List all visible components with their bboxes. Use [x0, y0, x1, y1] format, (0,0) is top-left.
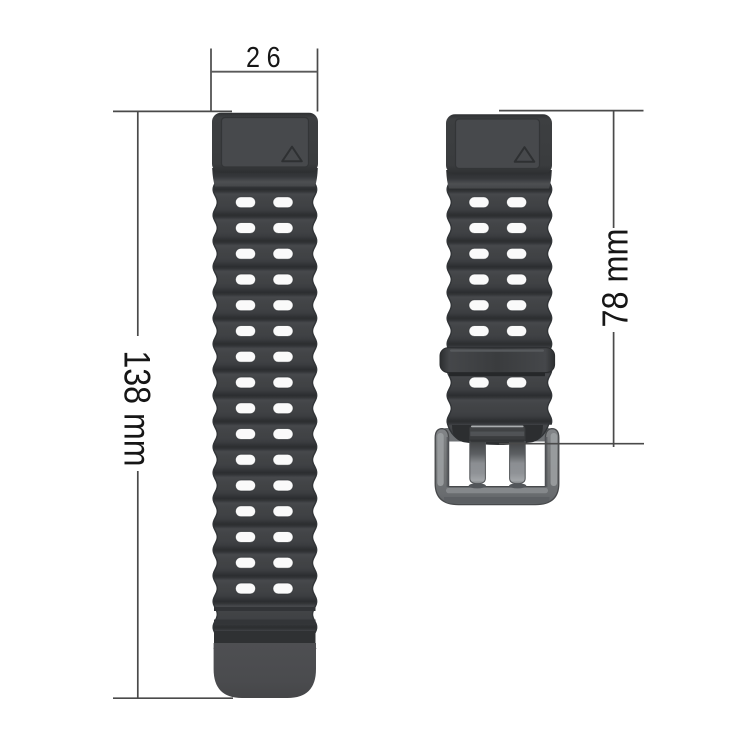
svg-text:138 mm: 138 mm [116, 350, 157, 466]
svg-text:26: 26 [246, 42, 287, 74]
svg-text:78 mm: 78 mm [596, 229, 636, 328]
